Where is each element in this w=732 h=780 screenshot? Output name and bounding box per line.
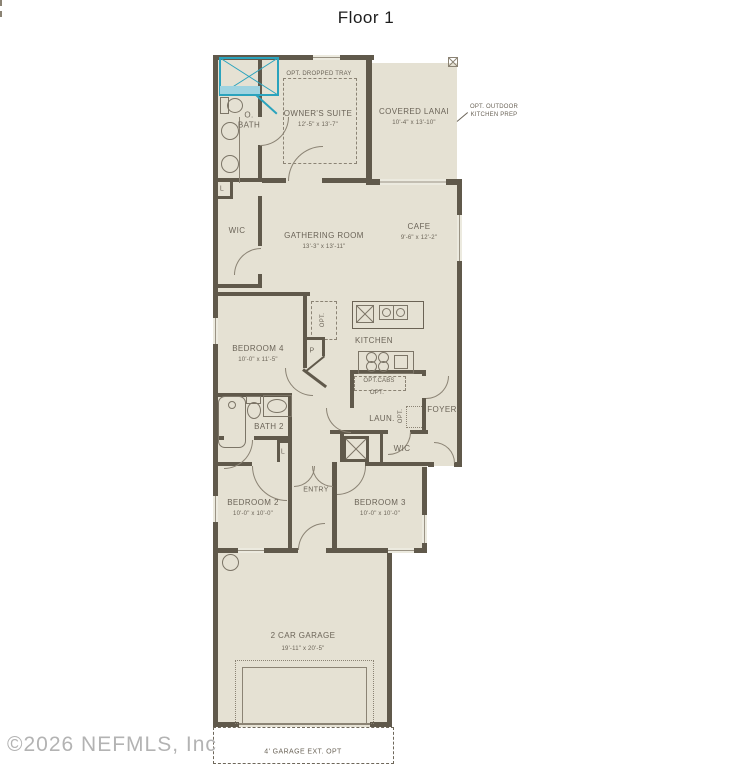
oven-symbol	[394, 355, 408, 369]
room-label-covered-lanai: COVERED LANAI	[379, 107, 449, 117]
wall	[380, 434, 383, 462]
room-dims-gathering: 13'-3" x 13'-11"	[303, 244, 346, 250]
wall	[213, 196, 233, 199]
window-symbol	[313, 55, 340, 60]
cooktop-burner-symbol	[378, 361, 389, 372]
wall	[303, 292, 307, 368]
pantry-label: P	[309, 346, 314, 355]
wall	[322, 178, 372, 183]
room-dims-bedroom2: 10'-0" x 10'-0"	[233, 511, 273, 517]
wall	[213, 553, 218, 728]
floorplan-title: Floor 1	[0, 8, 732, 28]
sink-symbol	[221, 155, 239, 173]
wall	[322, 337, 325, 356]
water-heater-symbol	[222, 554, 239, 571]
room-label-wic-owner: WIC	[229, 226, 246, 236]
sliding-door-symbol	[380, 179, 446, 185]
window-symbol	[213, 496, 218, 522]
floorplan-image: Floor 1	[0, 0, 732, 780]
room-dims-garage: 19'-11" x 20'-5"	[282, 646, 325, 652]
room-label-laundry: LAUN.	[369, 414, 395, 424]
opt-pantry-label: OPT.	[320, 313, 326, 328]
room-dims-covered-lanai: 10'-4" x 13'-10"	[392, 120, 435, 126]
garage-door-symbol	[242, 667, 367, 724]
room-dims-cafe: 9'-6" x 12'-2"	[401, 235, 437, 241]
toilet-symbol	[247, 402, 261, 419]
linen-closet-label: L	[220, 184, 224, 193]
wall	[213, 178, 262, 182]
room-label-bedroom4: BEDROOM 4	[232, 344, 284, 354]
wall	[454, 462, 462, 467]
wall	[277, 440, 280, 462]
wall	[258, 145, 262, 178]
wall	[262, 178, 286, 183]
sink-symbol	[221, 122, 239, 140]
room-label-bedroom3: BEDROOM 3	[354, 498, 406, 508]
cooktop-burner-symbol	[366, 361, 377, 372]
wall	[288, 393, 292, 553]
room-label-bedroom2: BEDROOM 2	[227, 498, 279, 508]
column-symbol	[448, 57, 458, 67]
room-label-o-bath: O. BATH	[238, 111, 260, 132]
opt-dropped-tray-label: OPT. DROPPED TRAY	[286, 71, 351, 79]
window-symbol	[422, 515, 427, 543]
wall	[350, 374, 354, 408]
room-label-cafe: CAFE	[408, 222, 431, 232]
window-symbol	[457, 215, 462, 261]
wall	[213, 284, 262, 288]
wall	[366, 55, 372, 185]
wall	[258, 274, 262, 284]
room-label-wic-bed3: WIC	[394, 444, 411, 454]
wall	[258, 196, 262, 246]
garage-ext-label: 4' GARAGE EXT. OPT	[264, 747, 341, 756]
room-label-garage: 2 CAR GARAGE	[271, 631, 336, 641]
annotation-leader-line	[457, 112, 468, 122]
wall	[213, 292, 310, 296]
window-symbol	[238, 548, 264, 553]
sink-symbol	[267, 399, 287, 413]
linen-closet-label: L	[281, 447, 285, 456]
wall	[387, 553, 392, 728]
wall	[277, 440, 288, 443]
dishwasher-symbol	[356, 305, 374, 323]
opt-outdoor-kitchen-label: OPT. OUTDOOR KITCHEN PREP	[470, 104, 518, 120]
room-label-foyer: FOYER	[427, 405, 457, 415]
watermark: ©2026 NEFMLS, Inc	[7, 733, 217, 757]
window-symbol	[213, 318, 218, 344]
opt-cabs2-label: OPT.	[370, 390, 384, 398]
room-label-kitchen: KITCHEN	[355, 336, 393, 346]
room-label-bath2: BATH 2	[254, 422, 284, 432]
mechanical-symbol	[343, 436, 369, 462]
tub-drain-symbol	[228, 401, 236, 409]
room-label-owners-suite: OWNER'S SUITE	[284, 109, 353, 119]
room-dims-owners-suite: 12'-5" x 13'-7"	[298, 122, 338, 128]
room-dims-bedroom3: 10'-0" x 10'-0"	[360, 511, 400, 517]
room-label-entry: ENTRY	[303, 485, 329, 494]
sink-symbol	[396, 308, 405, 317]
wall	[213, 55, 218, 555]
wall	[422, 398, 426, 434]
sink-symbol	[382, 308, 391, 317]
room-dims-bedroom4: 10'-0" x 11'-5"	[238, 357, 277, 363]
garage-extension-option-outline	[213, 727, 394, 764]
shower-symbol	[219, 57, 279, 97]
wall	[365, 462, 428, 466]
opt-cabs-label: OPT.CABS	[363, 378, 394, 386]
window-symbol	[388, 548, 414, 553]
opt-laundry-label: OPT.	[398, 409, 404, 424]
room-label-gathering: GATHERING ROOM	[284, 231, 364, 241]
